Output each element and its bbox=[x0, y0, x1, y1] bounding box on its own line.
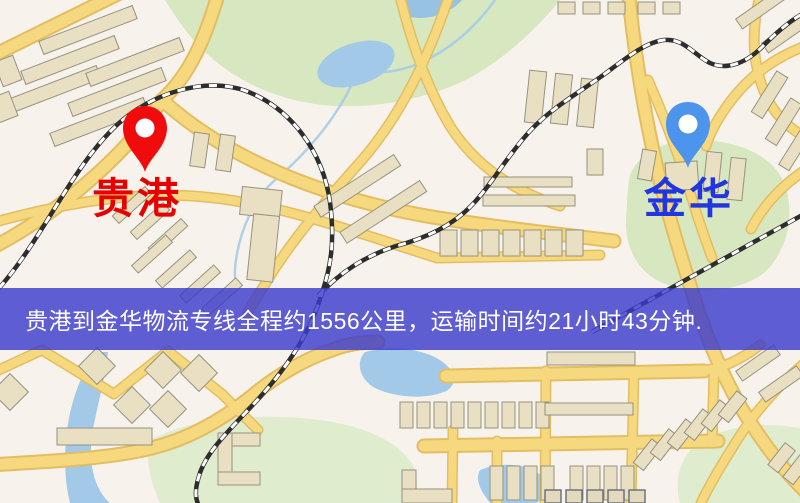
route-info-banner: 贵港到金华物流专线全程约1556公里，运输时间约21小时43分钟. bbox=[0, 288, 800, 350]
origin-map-pin-icon[interactable] bbox=[122, 106, 168, 172]
destination-map-pin-icon[interactable] bbox=[665, 102, 711, 168]
route-info-text: 贵港到金华物流专线全程约1556公里，运输时间约21小时43分钟. bbox=[0, 288, 800, 350]
origin-city-label: 贵港 bbox=[92, 178, 182, 220]
destination-city-label: 金华 bbox=[644, 178, 734, 220]
map-canvas[interactable]: 贵港 金华 贵港到金华物流专线全程约1556公里，运输时间约21小时43分钟. bbox=[0, 0, 800, 503]
base-map bbox=[0, 0, 800, 503]
